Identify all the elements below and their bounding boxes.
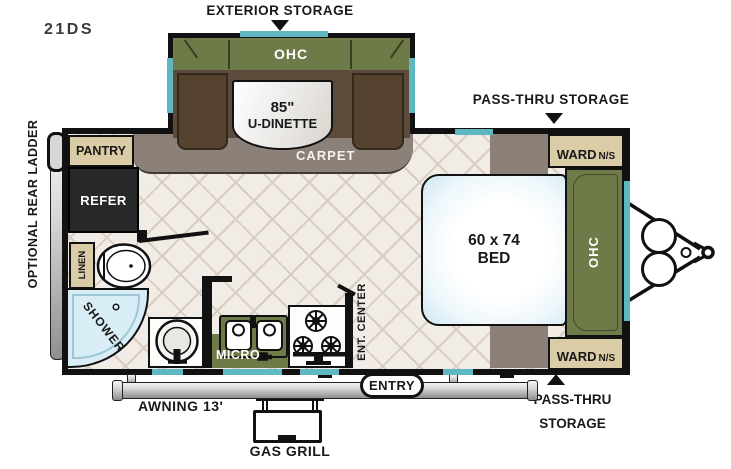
model-number: 21DS [44,21,94,39]
slide-window-right [409,58,415,113]
entry-label: ENTRY [369,378,415,393]
refrigerator-label: REFER [80,193,127,208]
bathroom-wall [202,276,212,368]
kitchen-sink-basin-left [225,320,252,351]
bathroom-vanity [148,317,206,368]
window-bedroom [443,369,473,375]
gas-grill-handle [278,435,296,441]
exterior-storage-label: EXTERIOR STORAGE [190,3,370,18]
bed-ohc-label: OHC [586,222,600,282]
bed-size-label: 60 x 74 [468,232,520,250]
bathroom-wall-stub [202,276,232,282]
dinette-seat-arm-left [177,73,228,150]
pass-thru-storage-top-label: PASS-THRU STORAGE [461,92,641,107]
propane-tank-1 [643,220,676,253]
dinette-ohc-divider [350,40,352,69]
microwave-label: MICRO [216,348,260,362]
refrigerator: REFER [68,167,139,233]
dinette-ohc-divider [228,40,230,69]
wardrobe-bottom-ns-label: N/S [599,353,616,364]
pass-thru-storage-bottom-arrow-icon [547,374,565,385]
ent-center-cabinet [345,293,353,368]
window-kitchen-left [223,369,282,375]
bed-label: BED [478,250,511,268]
pantry: PANTRY [68,135,134,167]
pass-thru-bottom-line2: STORAGE [539,412,606,436]
hitch-rail-lower [628,257,700,301]
wardrobe-top-label: WARD [557,147,597,162]
wardrobe-top: WARD N/S [548,134,624,168]
window-bath [152,369,183,375]
entry-door-badge: ENTRY [360,373,424,398]
hitch-coupler-ball [703,248,713,258]
awning-label: AWNING 13' [138,398,223,414]
dinette-label: U-DINETTE [248,116,317,131]
stove [288,305,353,368]
dinette-size-label: 85" [271,99,295,116]
dinette-table: 85" U-DINETTE [232,80,333,150]
awning-bar [115,382,531,399]
pass-thru-bottom-line1: PASS-THRU [534,388,612,412]
hitch-rail-upper [628,203,700,249]
carpet-label: CARPET [296,148,355,163]
wardrobe-bottom-label: WARD [557,349,597,364]
awning-end-cap [112,380,123,401]
bed: 60 x 74 BED [421,174,567,326]
awning-mount-cleat [500,372,514,378]
gas-grill-label: GAS GRILL [238,443,342,459]
dinette-ohc-label: OHC [241,46,341,62]
dinette-seat-arm-right [352,73,404,150]
hitch-jack [682,248,691,257]
exterior-storage-arrow-icon [271,20,289,31]
pass-thru-storage-top-arrow-icon [545,113,563,124]
slide-window-left [167,58,173,113]
optional-rear-ladder-label: OPTIONAL REAR LADDER [25,114,41,294]
awning-end-cap [527,380,538,401]
ent-center-label: ENT. CENTER [355,277,369,367]
floorplan-21ds: 21DS EXTERIOR STORAGE PASS-THRU STORAGE … [0,0,731,469]
window-top-wall [455,129,493,135]
pantry-label: PANTRY [76,144,126,158]
slide-window-top [240,31,328,37]
wardrobe-top-ns-label: N/S [599,151,616,162]
window-kitchen-right [300,369,339,375]
linen-label: LINEN [76,242,88,288]
wardrobe-bottom: WARD N/S [548,337,624,370]
kitchen-sink-basin-right [256,320,283,351]
hitch-coupler [694,243,707,262]
propane-tank-2 [643,253,676,286]
window-front-wall [624,181,630,321]
